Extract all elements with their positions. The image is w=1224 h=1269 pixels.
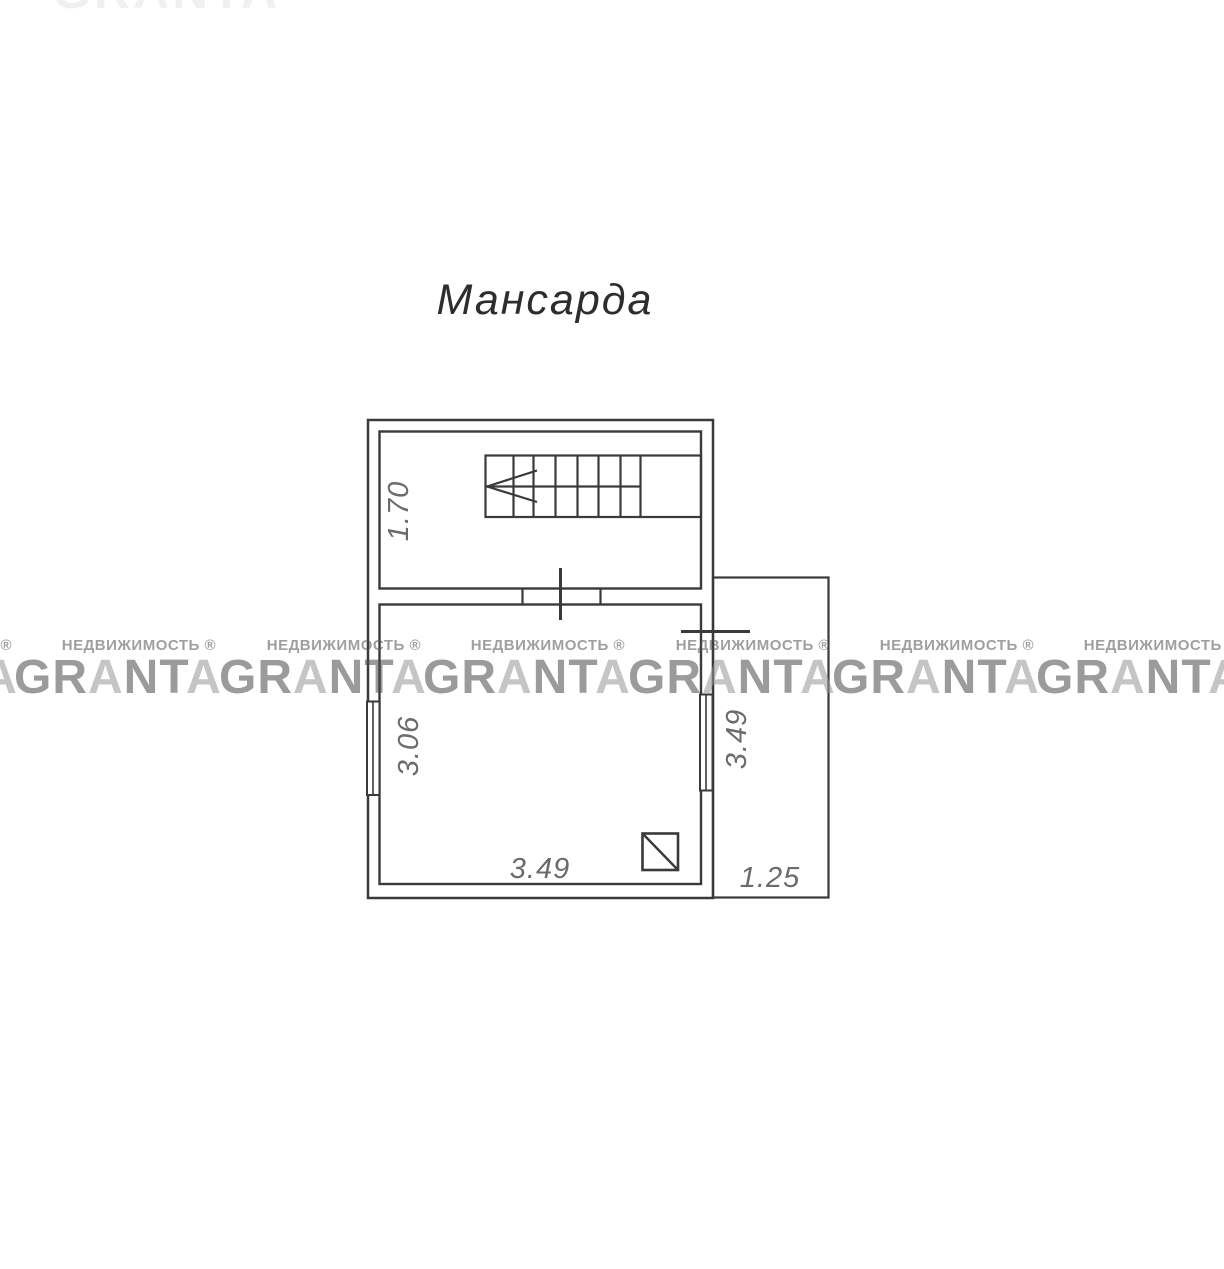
- window-left: [367, 702, 380, 796]
- floor-title: Мансарда: [437, 276, 654, 324]
- staircase: [486, 456, 702, 518]
- floor-plan-drawing: Мансарда: [0, 0, 1224, 1269]
- building-outer-wall: [368, 420, 713, 898]
- dim-main-room-bottom: 3.49: [510, 853, 570, 885]
- dim-main-room-right: 3.49: [721, 709, 753, 769]
- stair-direction-arrowhead: [487, 487, 537, 503]
- interior-doorway: [523, 568, 601, 620]
- dim-main-room-left: 3.06: [393, 716, 425, 776]
- shaft-symbol: [643, 834, 679, 871]
- window-right: [700, 695, 713, 791]
- floor-plan-canvas: Мансарда: [0, 0, 1224, 1269]
- dim-balcony-bottom: 1.25: [740, 862, 800, 894]
- dim-stair-room-depth: 1.70: [383, 481, 415, 541]
- stair-direction-arrowhead: [487, 471, 537, 487]
